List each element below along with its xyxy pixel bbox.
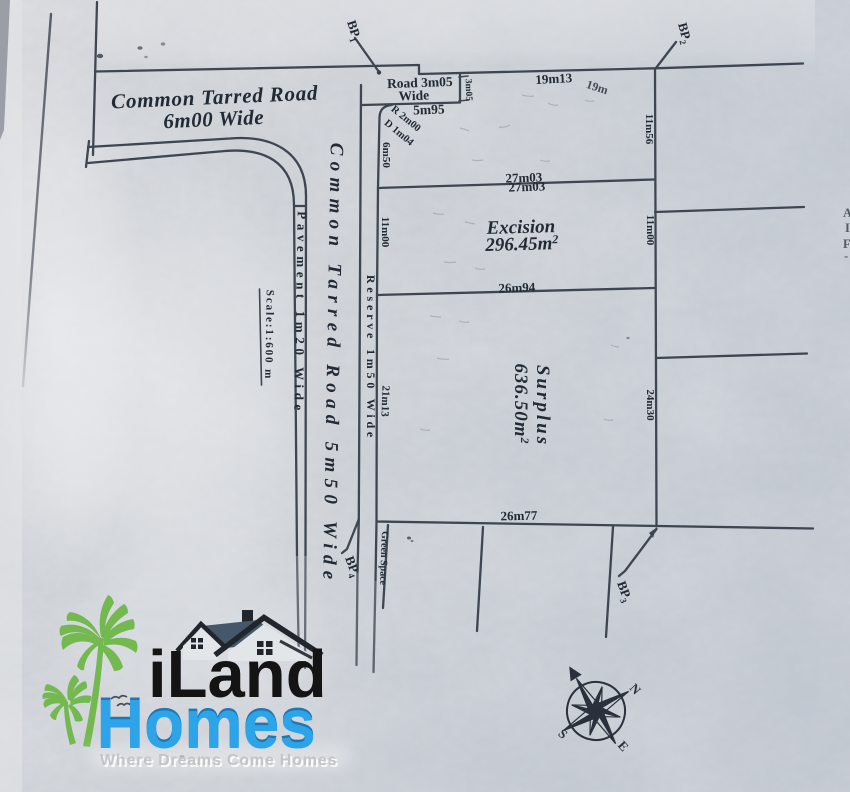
svg-text:Where Dreams Come Homes: Where Dreams Come Homes (100, 752, 337, 769)
svg-text:296.45m2: 296.45m2 (484, 232, 559, 256)
svg-text:Wide: Wide (398, 87, 429, 103)
svg-text:21m13: 21m13 (378, 385, 391, 417)
svg-text:Scale:1:600 m: Scale:1:600 m (262, 290, 276, 381)
svg-text:A: A (843, 206, 850, 220)
svg-text:Green Space: Green Space (377, 531, 390, 586)
svg-text:-: - (844, 249, 848, 263)
svg-text:5m95: 5m95 (413, 101, 445, 117)
svg-text:I: I (845, 221, 850, 235)
svg-text:27m03: 27m03 (508, 178, 546, 194)
svg-text:11m00: 11m00 (379, 217, 391, 248)
svg-text:Surplus: Surplus (532, 365, 553, 447)
svg-text:6m50: 6m50 (380, 142, 392, 168)
svg-text:Reserve 1m50 Wide: Reserve 1m50 Wide (364, 275, 378, 441)
svg-text:3m05: 3m05 (463, 79, 474, 102)
svg-text:19m13: 19m13 (535, 70, 573, 87)
svg-text:26m94: 26m94 (498, 279, 536, 295)
svg-text:11m56: 11m56 (643, 114, 655, 145)
svg-text:636.50m2: 636.50m2 (510, 363, 532, 444)
svg-text:26m77: 26m77 (500, 508, 538, 524)
svg-text:11m00: 11m00 (644, 215, 656, 246)
svg-text:6m00 Wide: 6m00 Wide (163, 105, 265, 133)
svg-text:24m30: 24m30 (644, 389, 656, 421)
